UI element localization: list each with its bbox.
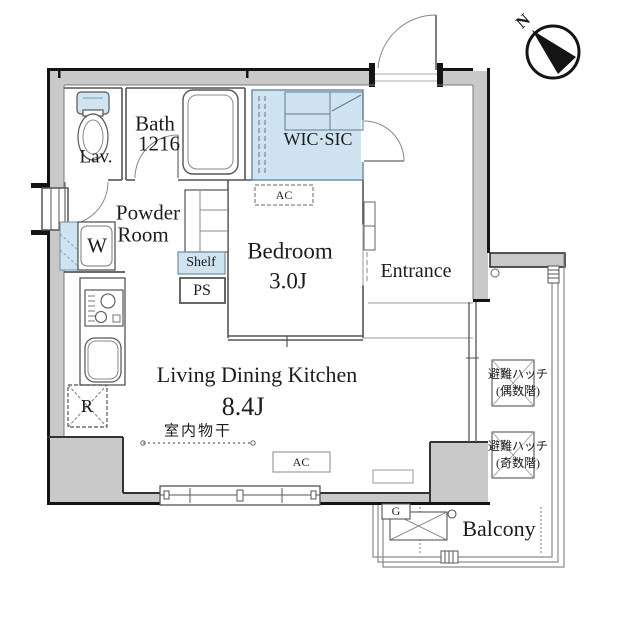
gas-heater-label: G <box>392 505 401 517</box>
indoor-drying-line <box>141 441 255 445</box>
compass-icon <box>527 26 579 78</box>
hatch-even-label-1: 避難ハッチ <box>488 368 548 380</box>
vanity <box>185 190 228 252</box>
room-label-bedroom-size: 3.0J <box>269 270 307 293</box>
room-label-lav: Lav. <box>79 148 112 167</box>
hatch-odd-label-2: (奇数階) <box>496 457 540 469</box>
floor-plan: N Lav. Bath 1216 Powder Room WIC·SIC Bed… <box>0 0 640 640</box>
pipe-shaft-label: PS <box>193 283 211 299</box>
room-label-wic: WIC·SIC <box>284 130 353 148</box>
ac-bedroom-label: AC <box>276 189 293 201</box>
shelf-label: Shelf <box>186 256 216 270</box>
balcony-drain <box>491 269 499 277</box>
ac-ldk-label: AC <box>293 456 310 468</box>
indoor-drying-label: 室内物干 <box>164 425 232 440</box>
hatch-even-label-2: (偶数階) <box>496 385 540 397</box>
room-label-bath-size: 1216 <box>138 134 180 155</box>
room-label-powder-2: Room <box>117 225 168 246</box>
room-label-ldk: Living Dining Kitchen <box>157 364 357 386</box>
kitchen-counter <box>80 278 125 385</box>
room-label-powder-1: Powder <box>116 203 180 224</box>
refrigerator-label: R <box>81 397 93 415</box>
ldk-window <box>160 486 320 505</box>
room-label-bedroom: Bedroom <box>247 240 333 263</box>
room-label-ldk-size: 8.4J <box>222 394 265 420</box>
floor-plan-drawing <box>0 0 640 640</box>
hatch-odd-label-1: 避難ハッチ <box>488 440 548 452</box>
room-label-entrance: Entrance <box>380 261 451 281</box>
doors <box>65 15 437 225</box>
bathtub <box>183 90 238 174</box>
room-label-balcony: Balcony <box>462 518 535 540</box>
washer-label: W <box>87 236 107 257</box>
